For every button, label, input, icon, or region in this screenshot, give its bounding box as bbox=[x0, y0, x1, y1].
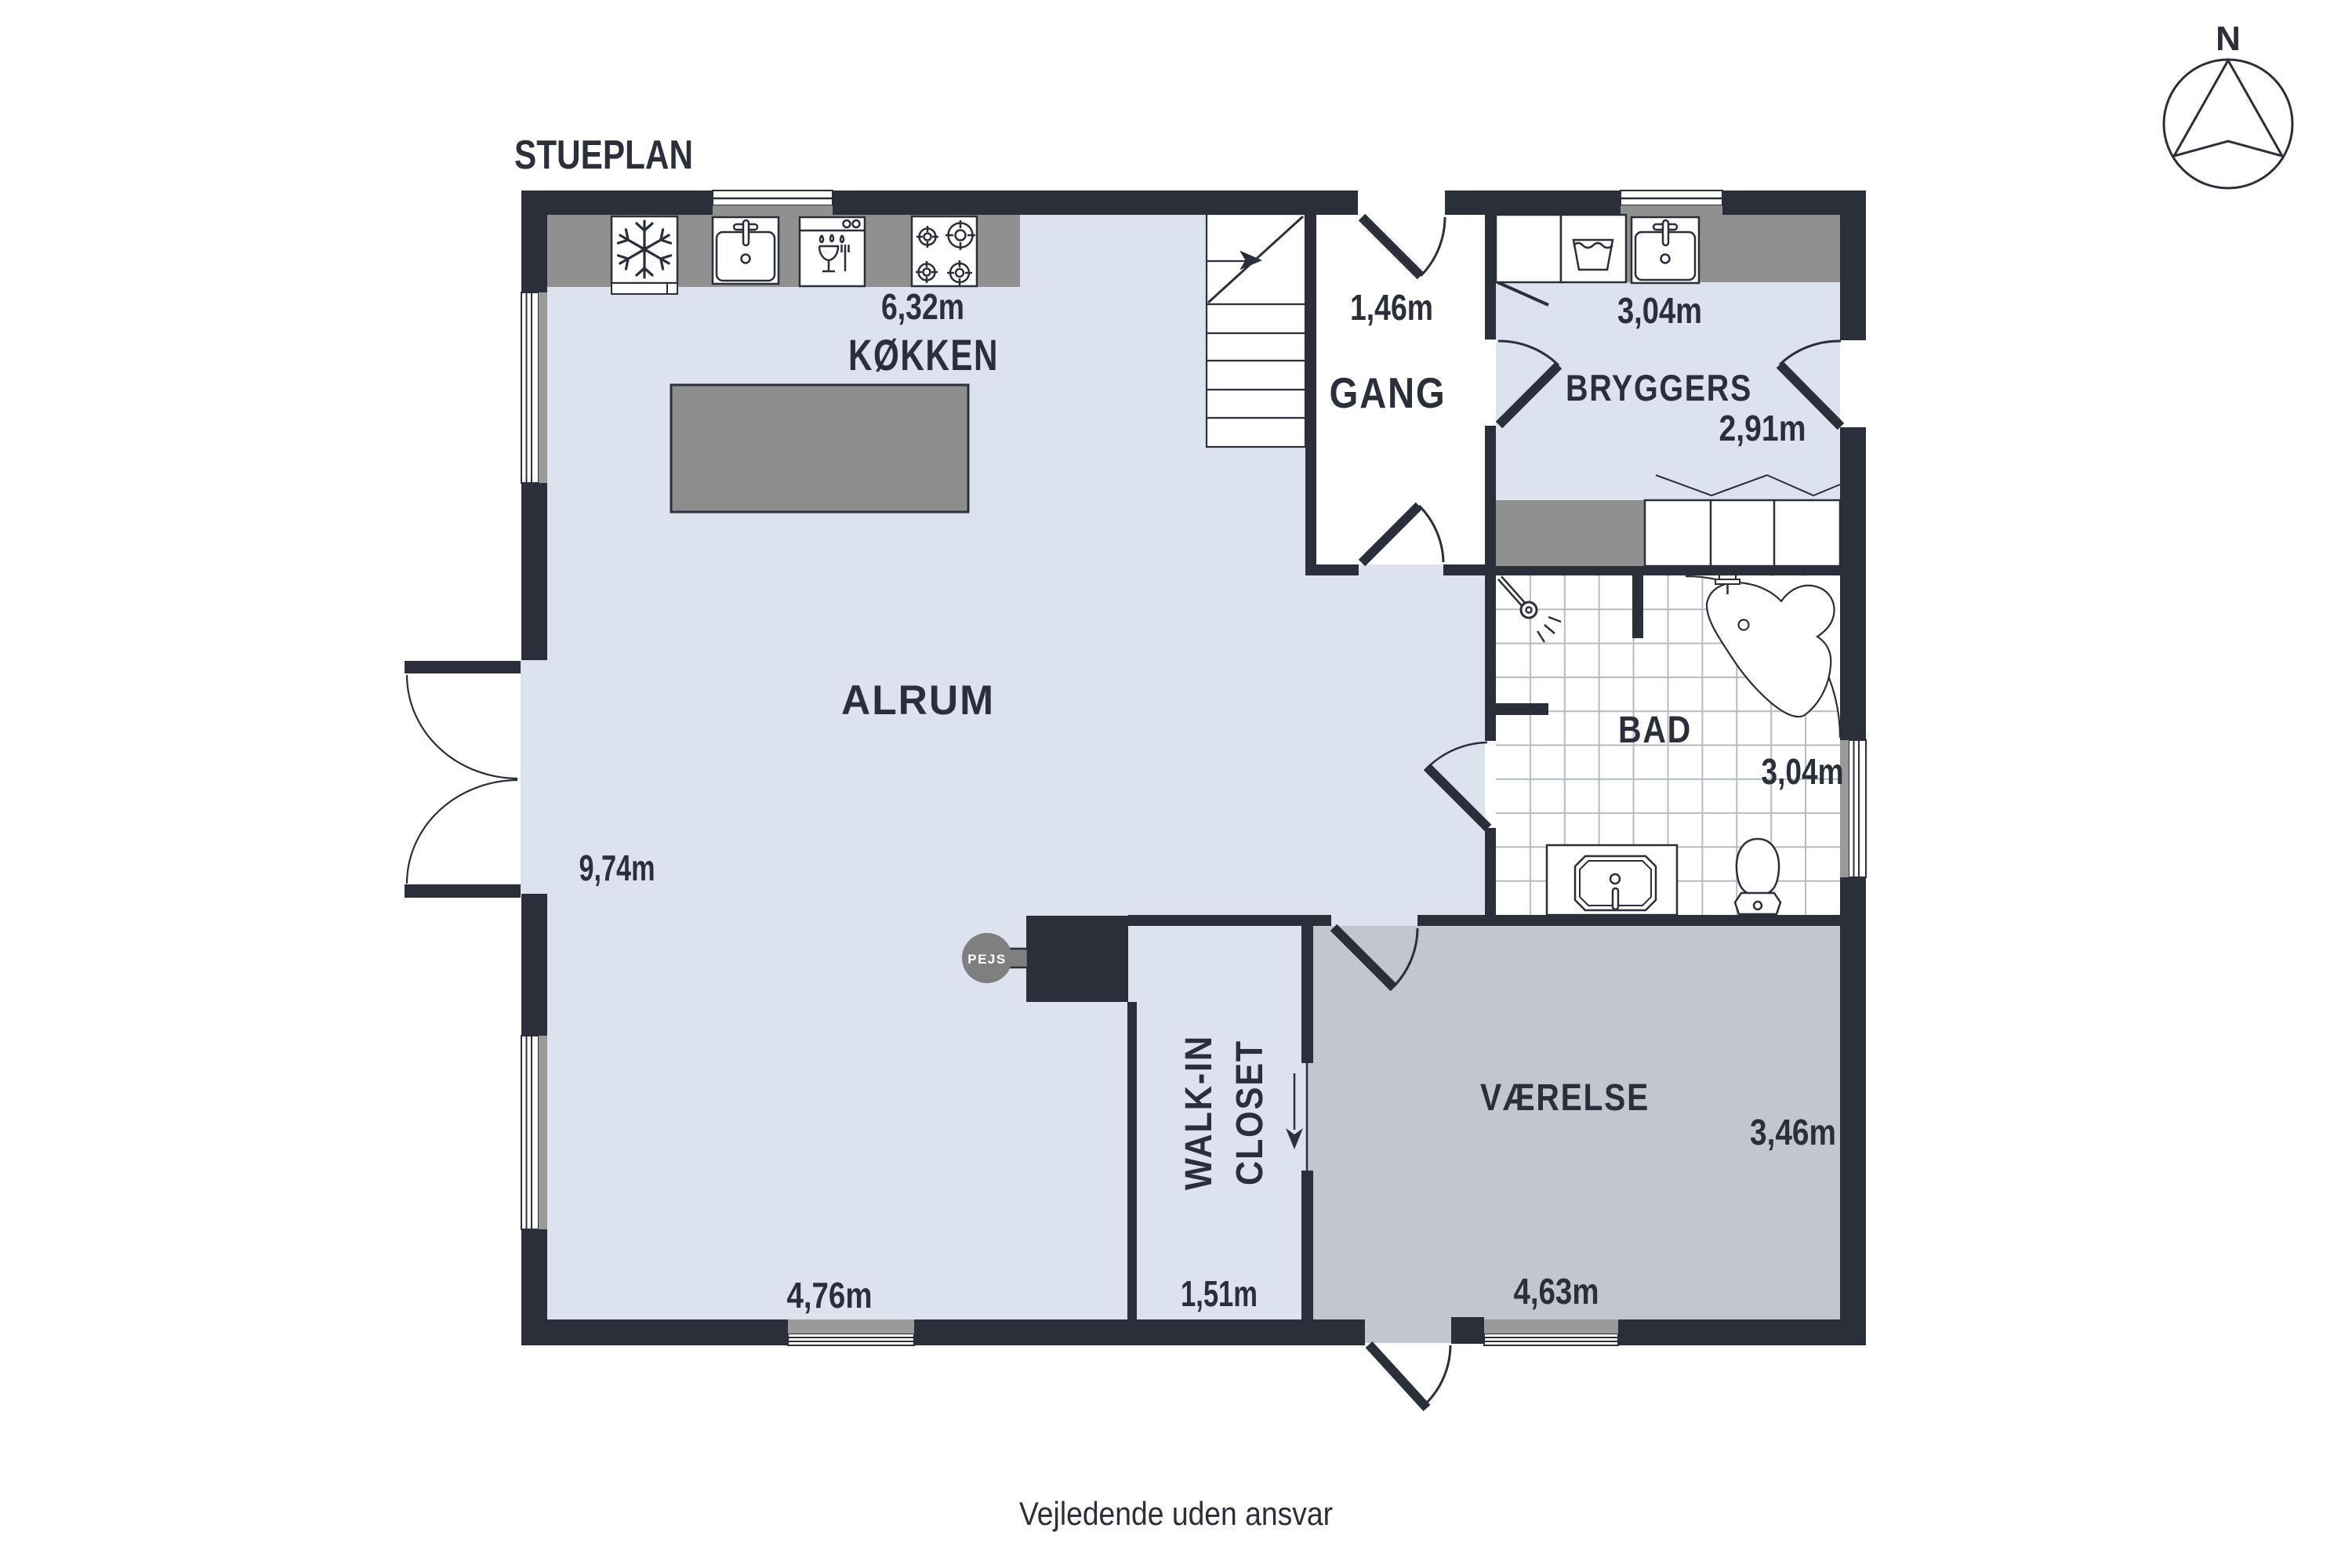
svg-text:1,51m: 1,51m bbox=[1181, 1273, 1258, 1314]
svg-text:9,74m: 9,74m bbox=[579, 848, 655, 888]
svg-text:ALRUM: ALRUM bbox=[841, 677, 995, 724]
svg-text:PEJS: PEJS bbox=[967, 952, 1006, 967]
svg-text:KØKKEN: KØKKEN bbox=[848, 330, 999, 379]
svg-text:3,46m: 3,46m bbox=[1750, 1112, 1836, 1152]
svg-text:CLOSET: CLOSET bbox=[1229, 1040, 1271, 1185]
svg-text:4,76m: 4,76m bbox=[787, 1275, 873, 1316]
svg-text:2,91m: 2,91m bbox=[1719, 408, 1806, 448]
svg-text:3,04m: 3,04m bbox=[1617, 290, 1702, 331]
svg-text:Vejledende uden ansvar: Vejledende uden ansvar bbox=[1019, 1495, 1333, 1532]
svg-text:4,63m: 4,63m bbox=[1514, 1271, 1599, 1312]
svg-text:STUEPLAN: STUEPLAN bbox=[514, 132, 693, 178]
svg-text:GANG: GANG bbox=[1330, 368, 1446, 417]
svg-text:6,32m: 6,32m bbox=[881, 286, 964, 327]
svg-text:WALK-IN: WALK-IN bbox=[1178, 1035, 1220, 1190]
svg-text:N: N bbox=[2216, 20, 2241, 58]
svg-text:BRYGGERS: BRYGGERS bbox=[1566, 367, 1752, 408]
svg-text:1,46m: 1,46m bbox=[1350, 287, 1433, 328]
svg-text:3,04m: 3,04m bbox=[1762, 751, 1844, 792]
svg-text:VÆRELSE: VÆRELSE bbox=[1480, 1077, 1650, 1119]
svg-text:BAD: BAD bbox=[1618, 710, 1692, 751]
